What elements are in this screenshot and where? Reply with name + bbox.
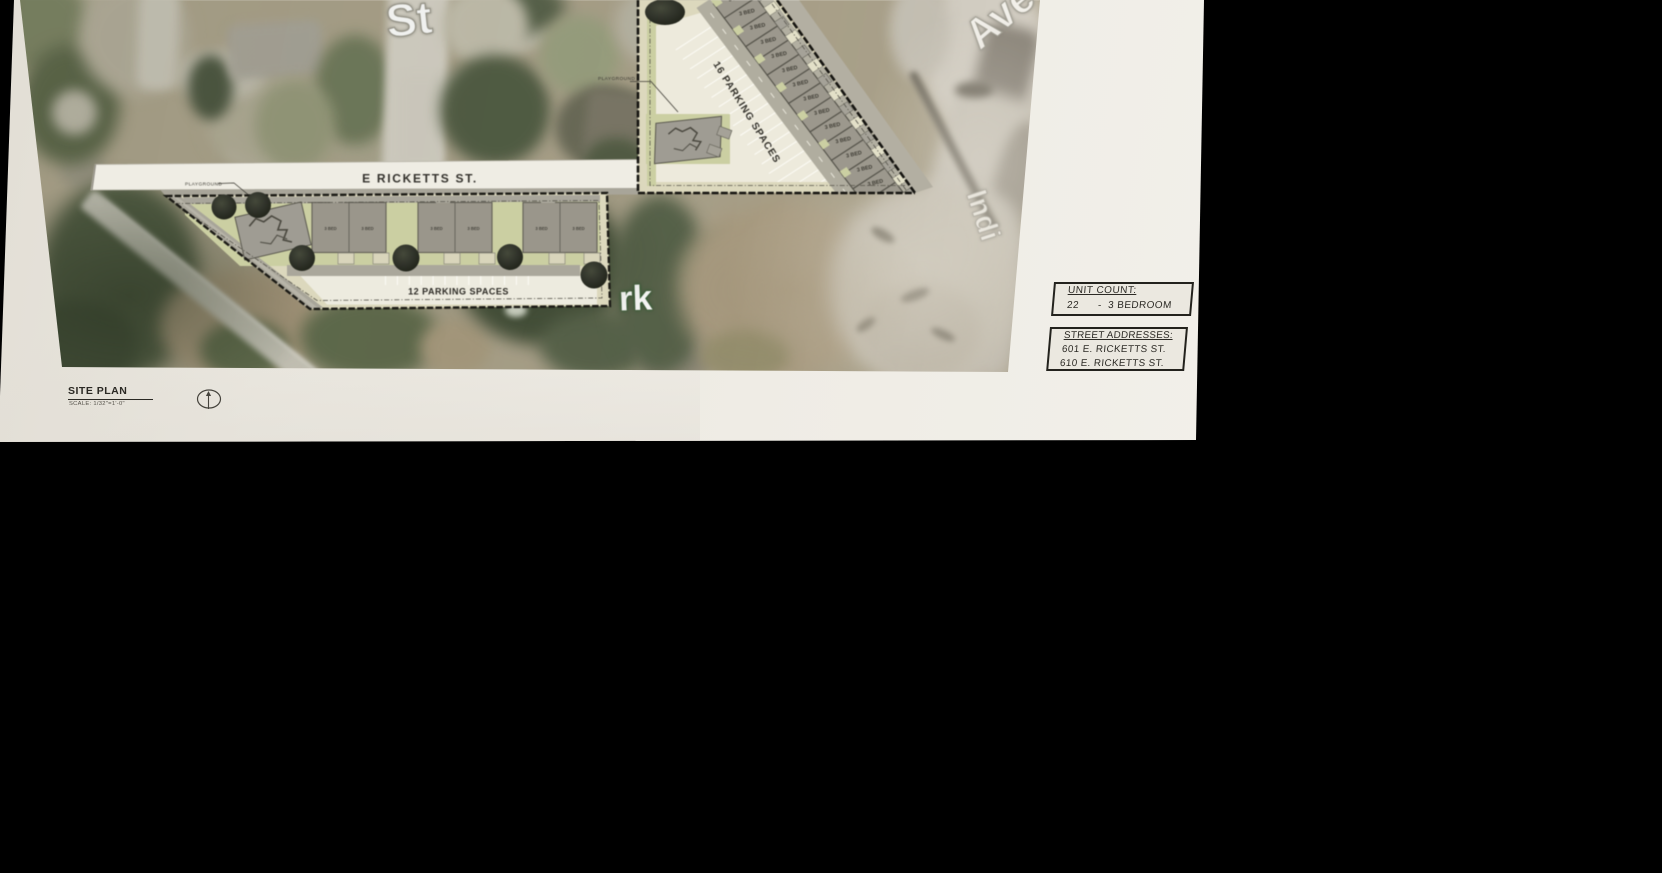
svg-text:PLAYGROUND: PLAYGROUND bbox=[185, 182, 222, 188]
svg-text:3 BED: 3 BED bbox=[572, 226, 584, 231]
svg-text:3 BED: 3 BED bbox=[361, 226, 373, 231]
svg-text:3 BED: 3 BED bbox=[467, 226, 479, 231]
svg-text:3 BED: 3 BED bbox=[430, 226, 442, 231]
svg-text:3 BED: 3 BED bbox=[535, 226, 547, 231]
svg-text:E RICKETTS ST.: E RICKETTS ST. bbox=[362, 172, 478, 186]
svg-text:PLAYGROUND: PLAYGROUND bbox=[598, 76, 635, 82]
svg-text:12 PARKING SPACES: 12 PARKING SPACES bbox=[408, 287, 509, 297]
svg-text:3 BED: 3 BED bbox=[324, 226, 336, 231]
